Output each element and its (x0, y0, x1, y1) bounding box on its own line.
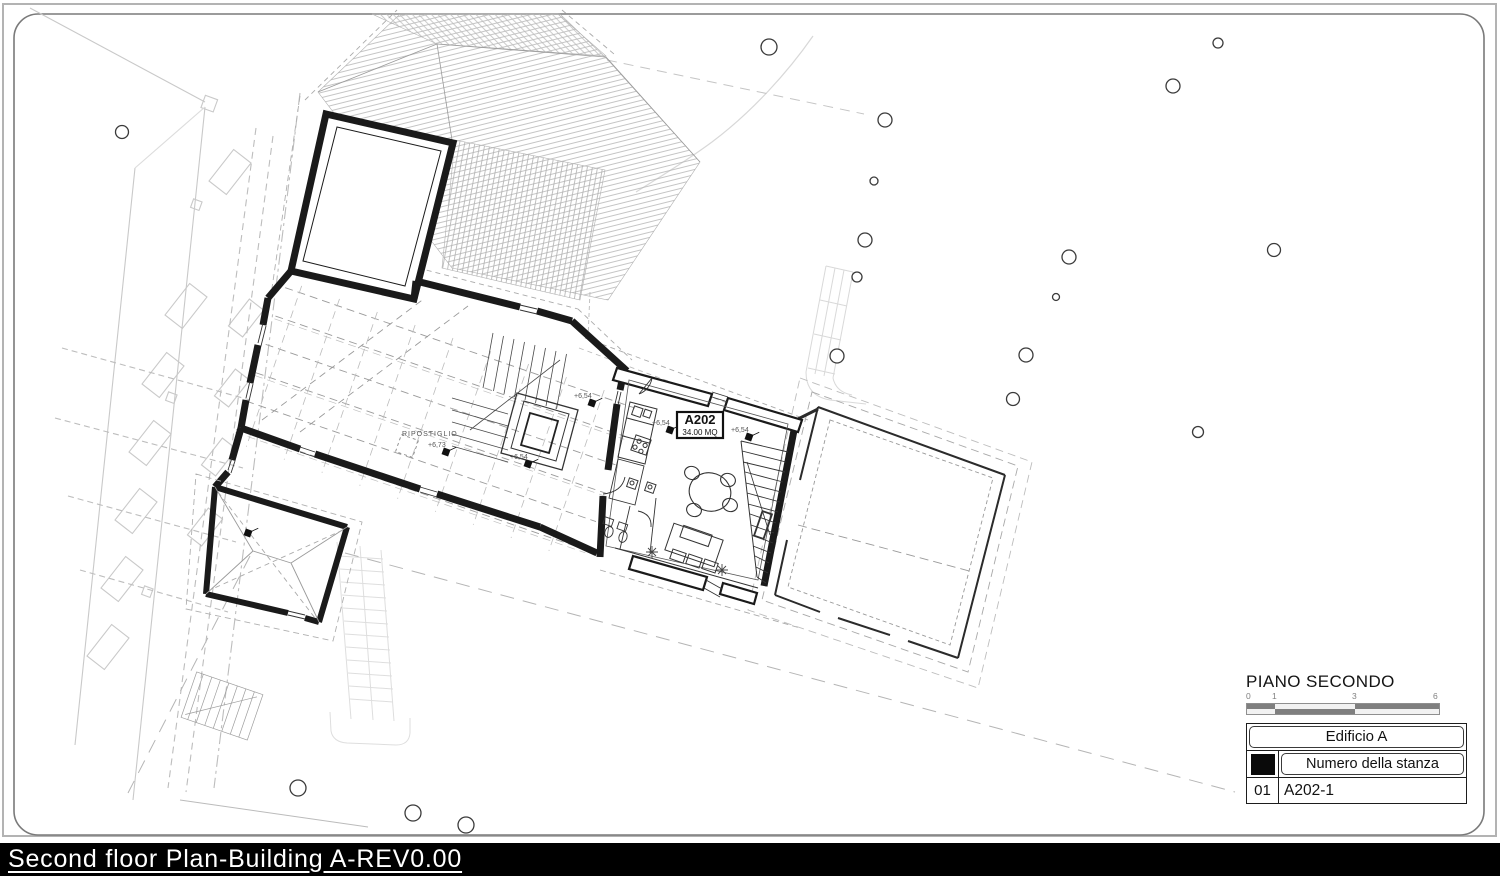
legend-row-room: A202-1 (1279, 778, 1466, 803)
legend-block: PIANO SECONDO 0 1 3 6 Edificio A (1246, 672, 1468, 804)
scale-tick: 6 (1433, 691, 1438, 701)
level-label: +6,54 (652, 420, 670, 427)
legend-title: PIANO SECONDO (1246, 672, 1468, 692)
legend-table: Edificio A Numero della stanza 01 A202-1 (1246, 723, 1467, 804)
drawing-sheet: RIPOSTIGLIO +6,73 +6,54 +6,54 +6,54 +6,5… (0, 0, 1500, 876)
adjacent-building-left (30, 8, 300, 800)
bathroom-fixtures (603, 506, 651, 549)
sheet-title: Second floor Plan-Building A-REV0.00 (8, 843, 462, 875)
room-label: A202 (684, 412, 715, 427)
scale-bar-ticks: 0 1 3 6 (1246, 692, 1468, 702)
dining-table (683, 464, 739, 518)
level-label: +6,54 (574, 393, 592, 400)
level-label: +6,54 (731, 427, 749, 434)
legend-building-name: Edificio A (1249, 726, 1464, 748)
scale-tick: 0 (1246, 691, 1251, 701)
scale-tick: 1 (1272, 691, 1277, 701)
scale-bar (1246, 703, 1440, 715)
level-label: +6,73 (428, 442, 446, 449)
title-bar: Second floor Plan-Building A-REV0.00 (0, 843, 1500, 876)
bottom-left-room (186, 474, 362, 641)
door-arc (638, 511, 651, 527)
room-number-swatch (1251, 754, 1275, 775)
legend-room-number-header: Numero della stanza (1281, 753, 1464, 775)
scale-tick: 3 (1352, 691, 1357, 701)
room-top-left (291, 114, 453, 299)
hall-staircase (452, 333, 578, 470)
skylight-windows (87, 149, 264, 669)
small-exterior-stair (181, 672, 263, 740)
ripostiglio-label: RIPOSTIGLIO (402, 431, 458, 438)
room-area-label: 34.00 MQ (682, 428, 717, 437)
level-label: +6,54 (510, 454, 528, 461)
legend-row-id: 01 (1247, 778, 1279, 803)
external-stair (330, 542, 410, 745)
room-tag-a202: A202 34.00 MQ (677, 412, 723, 438)
